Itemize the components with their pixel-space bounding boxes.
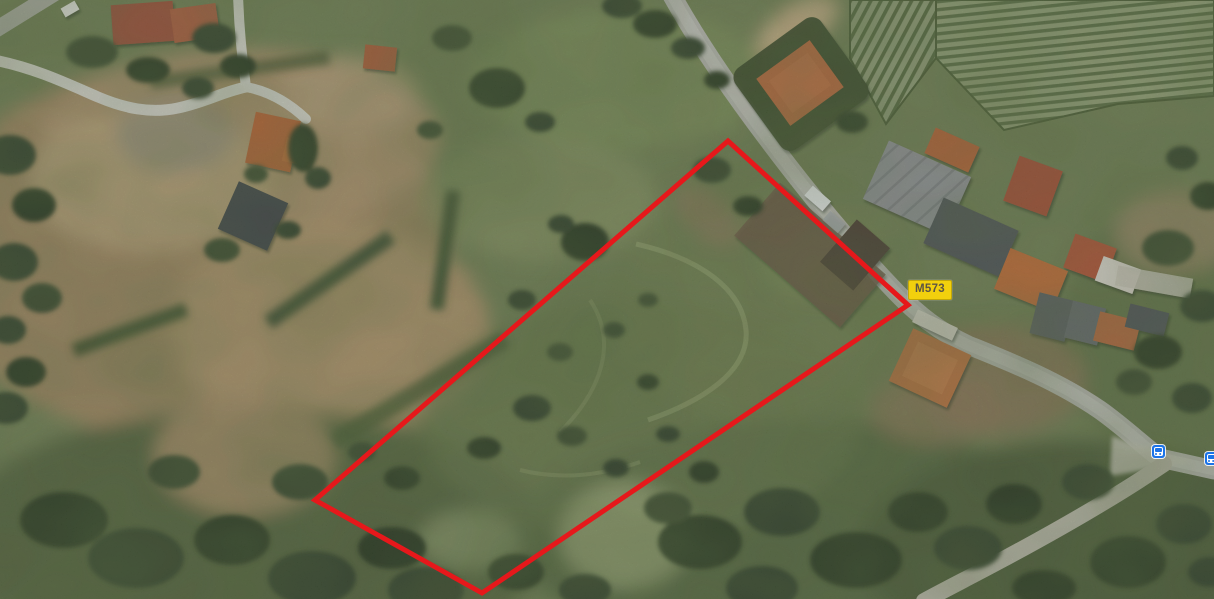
bus-stop-icon[interactable] bbox=[1205, 452, 1214, 465]
bus-icon-glyph bbox=[1207, 454, 1214, 463]
bus-icon-glyph bbox=[1154, 447, 1163, 456]
road-label[interactable]: M573 bbox=[908, 280, 952, 300]
bus-stop-icon[interactable] bbox=[1152, 445, 1165, 458]
satellite-imagery bbox=[0, 0, 1214, 599]
map-canvas[interactable]: M573 bbox=[0, 0, 1214, 599]
